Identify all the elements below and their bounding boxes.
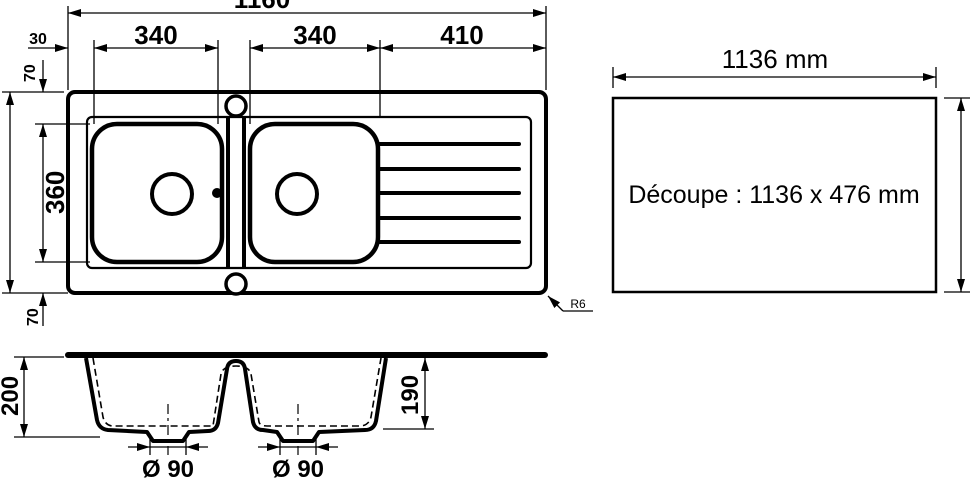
dim-overall-height-label: 200: [0, 376, 24, 416]
dim-bowl2-width-label: 340: [293, 20, 336, 50]
dim-bottom-rim-label: 70: [25, 308, 42, 326]
plan-view: [68, 92, 546, 294]
dim-bowl1-width-label: 340: [134, 20, 177, 50]
dim-drain-right-label: Ø 90: [272, 456, 324, 480]
section-view: [68, 355, 545, 455]
dim-top-rim-label: 70: [22, 64, 39, 82]
bowl-left-drain: [152, 174, 192, 214]
dim-left-rim-label: 30: [29, 31, 47, 48]
sink-technical-drawing: 1160 30 340 340 410 70 360 70: [0, 0, 970, 480]
bowls-inner-surface-dashed: [93, 358, 381, 426]
cutout-height-dimension: [944, 98, 970, 292]
cutout-label: Découpe : 1136 x 476 mm: [628, 181, 919, 209]
dim-overall-width-label: 1160: [234, 0, 290, 14]
dim-bowl-depth-label: 190: [397, 375, 424, 415]
bowl-right-drain: [277, 174, 317, 214]
cutout-width-label: 1136 mm: [722, 44, 828, 74]
corner-radius-leader: [548, 296, 563, 311]
tap-hole-top: [226, 96, 246, 116]
bowls-section-profile: [86, 358, 386, 441]
tap-hole-bottom: [226, 274, 246, 294]
drawing-root: 1160 30 340 340 410 70 360 70: [0, 0, 970, 480]
bowl-left-overflow: [212, 188, 222, 198]
cutout-panel: 1136 mm Découpe : 1136 x 476 mm: [613, 44, 970, 292]
drawing-canvas: 1160 30 340 340 410 70 360 70: [0, 0, 970, 480]
corner-radius-label: R6: [570, 297, 586, 311]
dim-drainer-width-label: 410: [440, 20, 483, 50]
dim-bowl-front-back-label: 360: [40, 171, 70, 214]
dim-drain-left-label: Ø 90: [142, 456, 194, 480]
